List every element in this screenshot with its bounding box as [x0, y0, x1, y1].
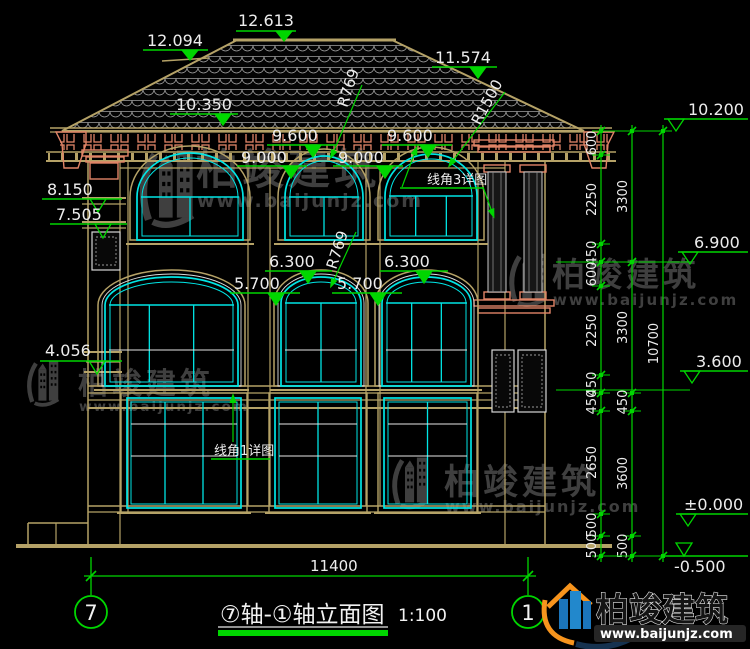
watermark-brand-text: 柏竣建筑 — [552, 255, 700, 294]
dim-chain-label: 3300 — [616, 311, 631, 344]
drawing-scale: 1:100 — [398, 606, 447, 626]
spot-elevation-label: 10.350 — [176, 95, 232, 114]
spot-elevation-label: 11.574 — [435, 48, 491, 67]
dim-chain-label: 2250 — [585, 183, 600, 216]
dim-chain-label: 2650 — [585, 446, 600, 479]
spot-elevation-label: 9.000 — [338, 148, 384, 167]
dim-chain-label: 450 — [616, 390, 631, 415]
ornament-panel — [492, 350, 514, 412]
dim-chain-label: 500 — [585, 534, 600, 559]
spot-elevation-label: 10.200 — [688, 100, 744, 119]
logo-url-text: www.baijunjz.com — [600, 627, 733, 642]
spot-elevation-label: 12.613 — [238, 11, 294, 30]
spot-elevation-label: 9.600 — [272, 126, 318, 145]
spot-elevation-label: 3.600 — [696, 352, 742, 371]
spot-elevation-label: 7.505 — [56, 205, 102, 224]
spot-elevation-label: 5.700 — [234, 274, 280, 293]
spot-elevation-label: 9.600 — [387, 126, 433, 145]
baluster-column — [488, 172, 506, 292]
spot-elevation-label: 5.700 — [337, 274, 383, 293]
spot-elevation-label: 8.150 — [47, 180, 93, 199]
dim-chain-label: 500 — [616, 534, 631, 559]
dim-chain-label: 450 — [585, 390, 600, 415]
elevation-canvas: 柏竣建筑www.baijunjz.com柏竣建筑www.baijunjz.com… — [0, 0, 750, 649]
detail-callout-label: 线角1详图 — [214, 444, 274, 459]
axis-bubble-1-label: 1 — [521, 601, 534, 625]
detail-callout-label: 线角3详图 — [427, 173, 487, 188]
spot-elevation-label: 6.300 — [384, 252, 430, 271]
logo-building-icon — [583, 601, 591, 629]
dim-chain-label: 3600 — [616, 457, 631, 490]
dim-chain-label: 3300 — [616, 180, 631, 213]
spot-elevation-label: 6.900 — [694, 233, 740, 252]
watermark-url-text: www.baijunjz.com — [553, 291, 738, 309]
logo-building-icon — [559, 599, 568, 629]
watermark-url-text: www.baijunjz.com — [197, 190, 423, 212]
cad-elevation-drawing: 柏竣建筑www.baijunjz.com柏竣建筑www.baijunjz.com… — [0, 0, 750, 649]
spot-elevation-label: 9.000 — [241, 148, 287, 167]
drawing-title: ⑦轴-①轴立面图 — [220, 602, 385, 628]
logo-brand-text: 柏竣建筑 — [596, 590, 728, 629]
bottom-dimension-label: 11400 — [310, 557, 358, 575]
axis-bubble-7-label: 7 — [84, 601, 97, 625]
dim-chain-label: 2250 — [585, 314, 600, 347]
dim-chain-label: 600 — [585, 131, 600, 156]
spot-elevation-label: 12.094 — [147, 31, 203, 50]
spot-elevation-label: 4.056 — [45, 341, 91, 360]
title-underline-bar — [218, 630, 388, 636]
spot-elevation-label: 6.300 — [269, 252, 315, 271]
dim-chain-label: 10700 — [647, 323, 662, 364]
baluster-column — [524, 172, 542, 292]
spot-elevation-label: ±0.000 — [684, 495, 743, 514]
spot-elevation-label: -0.500 — [674, 557, 726, 576]
logo-building-icon — [570, 591, 581, 629]
dim-chain-label: 600 — [585, 262, 600, 287]
